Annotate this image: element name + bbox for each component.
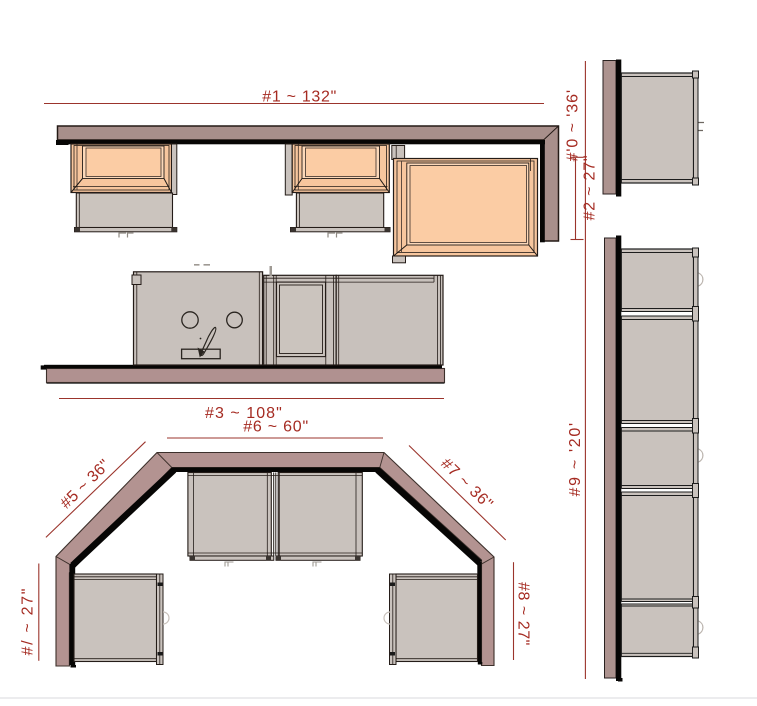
svg-text:#/ ~ 27": #/ ~ 27" [19, 587, 36, 656]
svg-text:#1 ~ 132": #1 ~ 132" [262, 88, 337, 105]
svg-text:#9 ~ '20': #9 ~ '20' [567, 421, 584, 496]
svg-text:#2 ~ 27": #2 ~ 27" [582, 155, 599, 221]
svg-text:#'0 ~ '36': #'0 ~ '36' [565, 89, 582, 162]
svg-text:#8 ~ 27": #8 ~ 27" [515, 582, 532, 646]
svg-text:#6 ~ 60": #6 ~ 60" [243, 418, 309, 435]
